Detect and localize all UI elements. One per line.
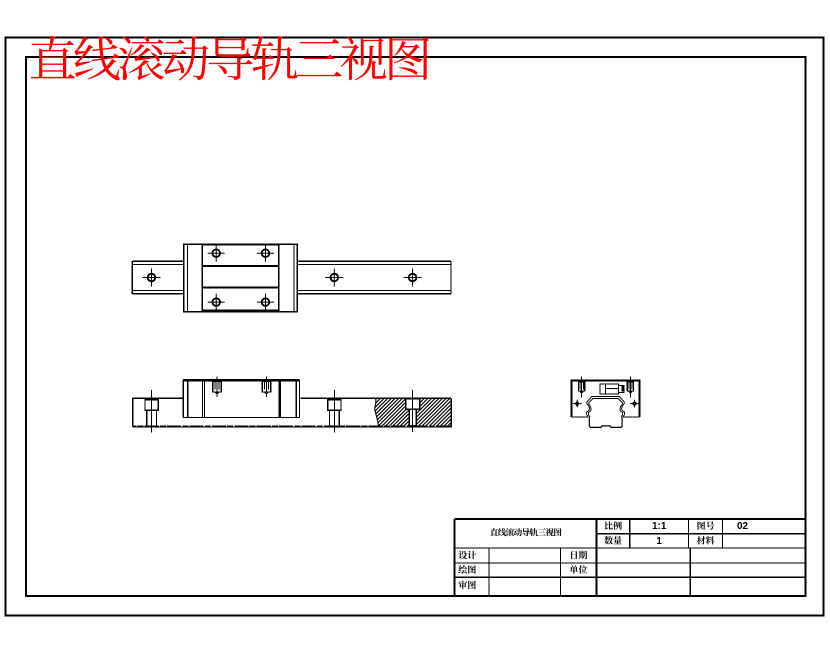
svg-text:1:1: 1:1: [652, 521, 667, 532]
svg-text:02: 02: [737, 521, 749, 532]
svg-text:1: 1: [656, 536, 662, 547]
